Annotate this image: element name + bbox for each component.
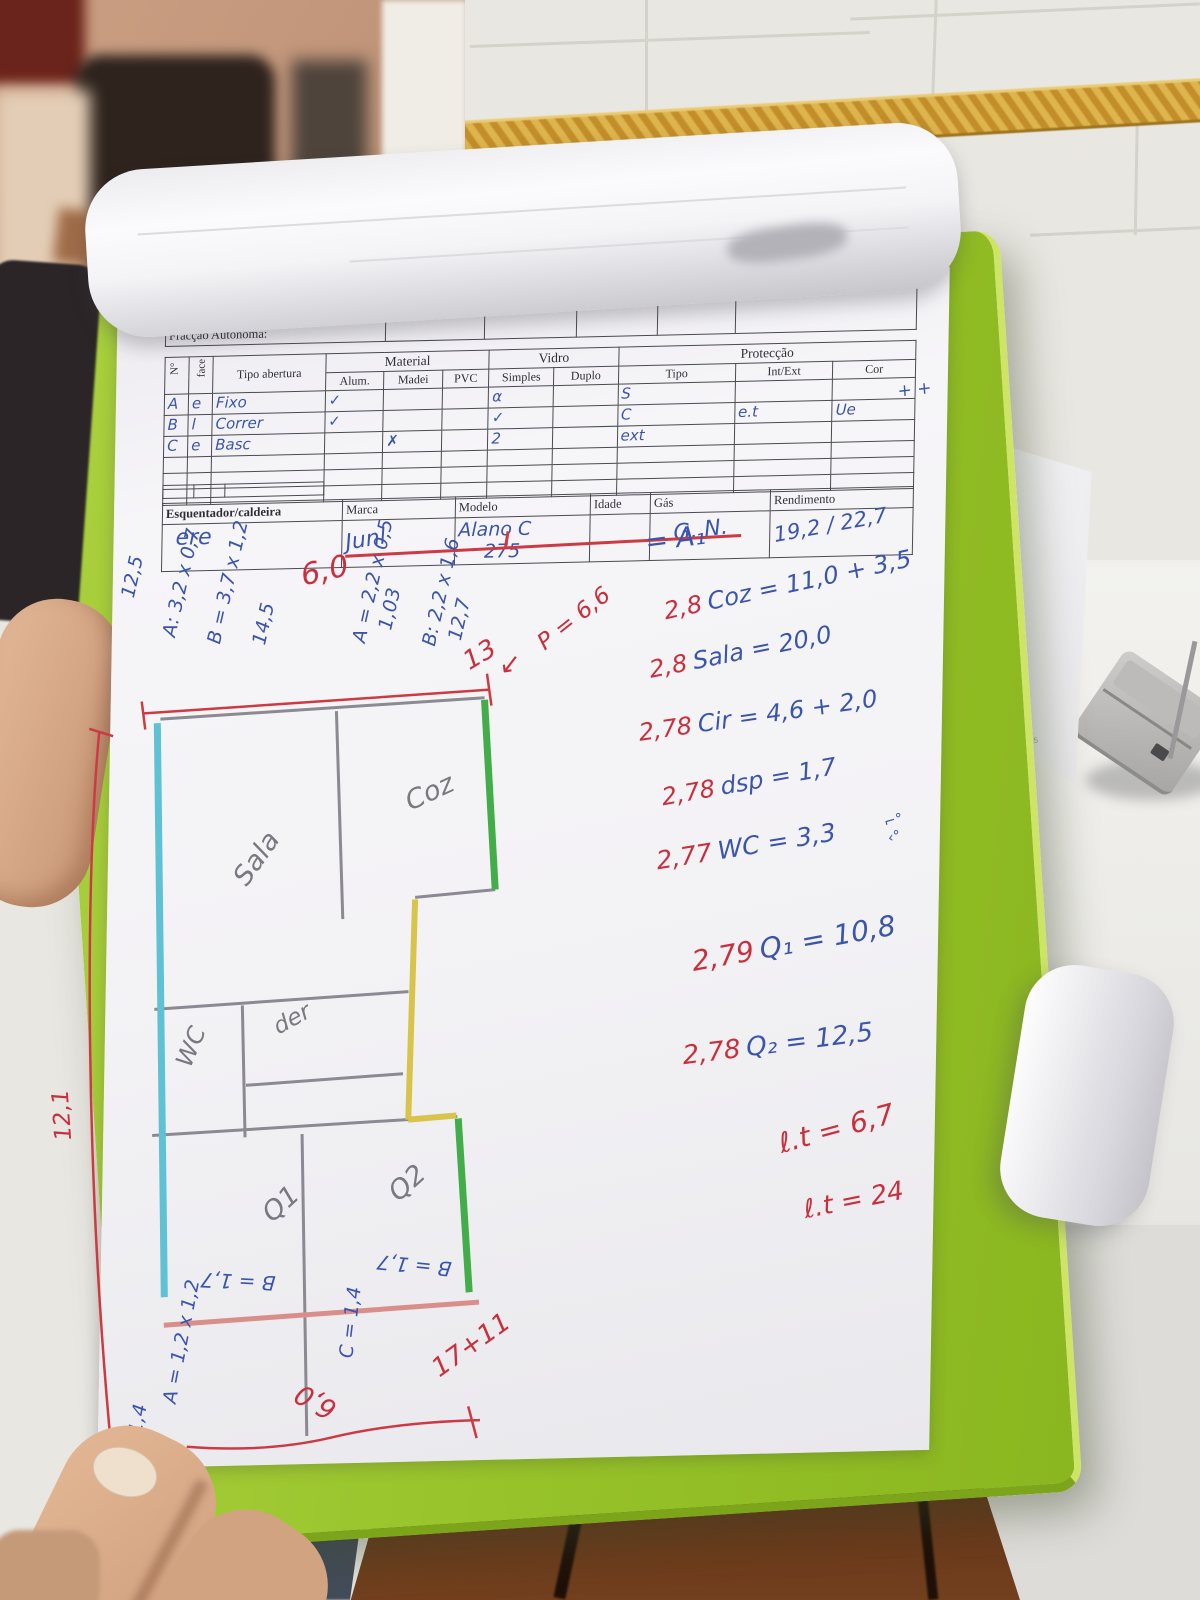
col-madei: Madei — [398, 372, 429, 387]
gray-device — [1078, 652, 1200, 827]
openings-table: N° face Tipo abertura Material Vidro Pro… — [162, 340, 916, 506]
margin-note: + + — [897, 378, 932, 402]
col-prot-tipo: Tipo — [665, 366, 687, 381]
col-cor: Cor — [865, 362, 883, 376]
group-vidro: Vidro — [538, 350, 569, 366]
col-tipo-abertura: Tipo abertura — [237, 365, 302, 380]
label-esquentador: Esquentador/caldeira — [166, 504, 282, 521]
wc-degree-marks: ⌐° ‹° — [882, 811, 908, 847]
col-pvc: PVC — [454, 371, 478, 386]
calc-line: 2,8Sala = 20,0 — [647, 620, 833, 684]
label-modelo: Modelo — [459, 499, 498, 514]
calc-line: 2,79Q₁ = 10,8 — [690, 909, 898, 978]
col-int-ext: Int/Ext — [767, 364, 801, 379]
palm — [0, 1530, 100, 1600]
tile-grout-line — [1030, 226, 1200, 236]
label-gas: Gás — [654, 495, 674, 509]
label-marca: Marca — [346, 502, 378, 517]
calc-line: 2,78dsp = 1,7 — [660, 752, 838, 811]
calc-line: 2,78Q₂ = 12,5 — [681, 1017, 874, 1071]
group-proteccao: Protecção — [740, 345, 793, 361]
tile-grout-line — [850, 2, 1200, 20]
perimeter-arrow: ↙ — [497, 648, 522, 681]
label-idade: Idade — [594, 497, 622, 512]
tile-grout-line — [470, 31, 870, 48]
label-rendimento: Rendimento — [774, 492, 835, 507]
col-alum: Alum. — [339, 373, 370, 388]
dark-red-object — [0, 0, 85, 85]
dim-b17-q1: B = 1,7 — [200, 1268, 277, 1296]
group-material: Material — [385, 353, 431, 369]
col-face: face — [196, 359, 208, 378]
calc-line: 2,77WC = 3,3 — [655, 817, 838, 875]
calc-total-1: ℓ.t = 6,7 — [776, 1097, 898, 1160]
photo-kitchen-clipboard: 5o ambos guardar MobileDedPropCert v.5 B… — [0, 0, 1200, 1600]
col-n: N° — [169, 362, 181, 375]
gray-smudge — [726, 218, 849, 267]
hw-modelo: Alano C — [458, 518, 531, 542]
col-simples: Simples — [502, 369, 541, 384]
calc-line: 2,78Cir = 4,6 + 2,0 — [637, 684, 878, 746]
survey-form-paper: Bucah Dlange Fracção Autónoma: Ano de Co… — [97, 267, 949, 1469]
col-duplo: Duplo — [571, 368, 601, 383]
calc-total-2: ℓ.t = 24 — [802, 1176, 906, 1225]
device-port — [1150, 743, 1170, 762]
dim-left-height: 12,1 — [48, 1088, 78, 1142]
hw-rendimento: 19,2 / 22,7 — [773, 503, 889, 547]
